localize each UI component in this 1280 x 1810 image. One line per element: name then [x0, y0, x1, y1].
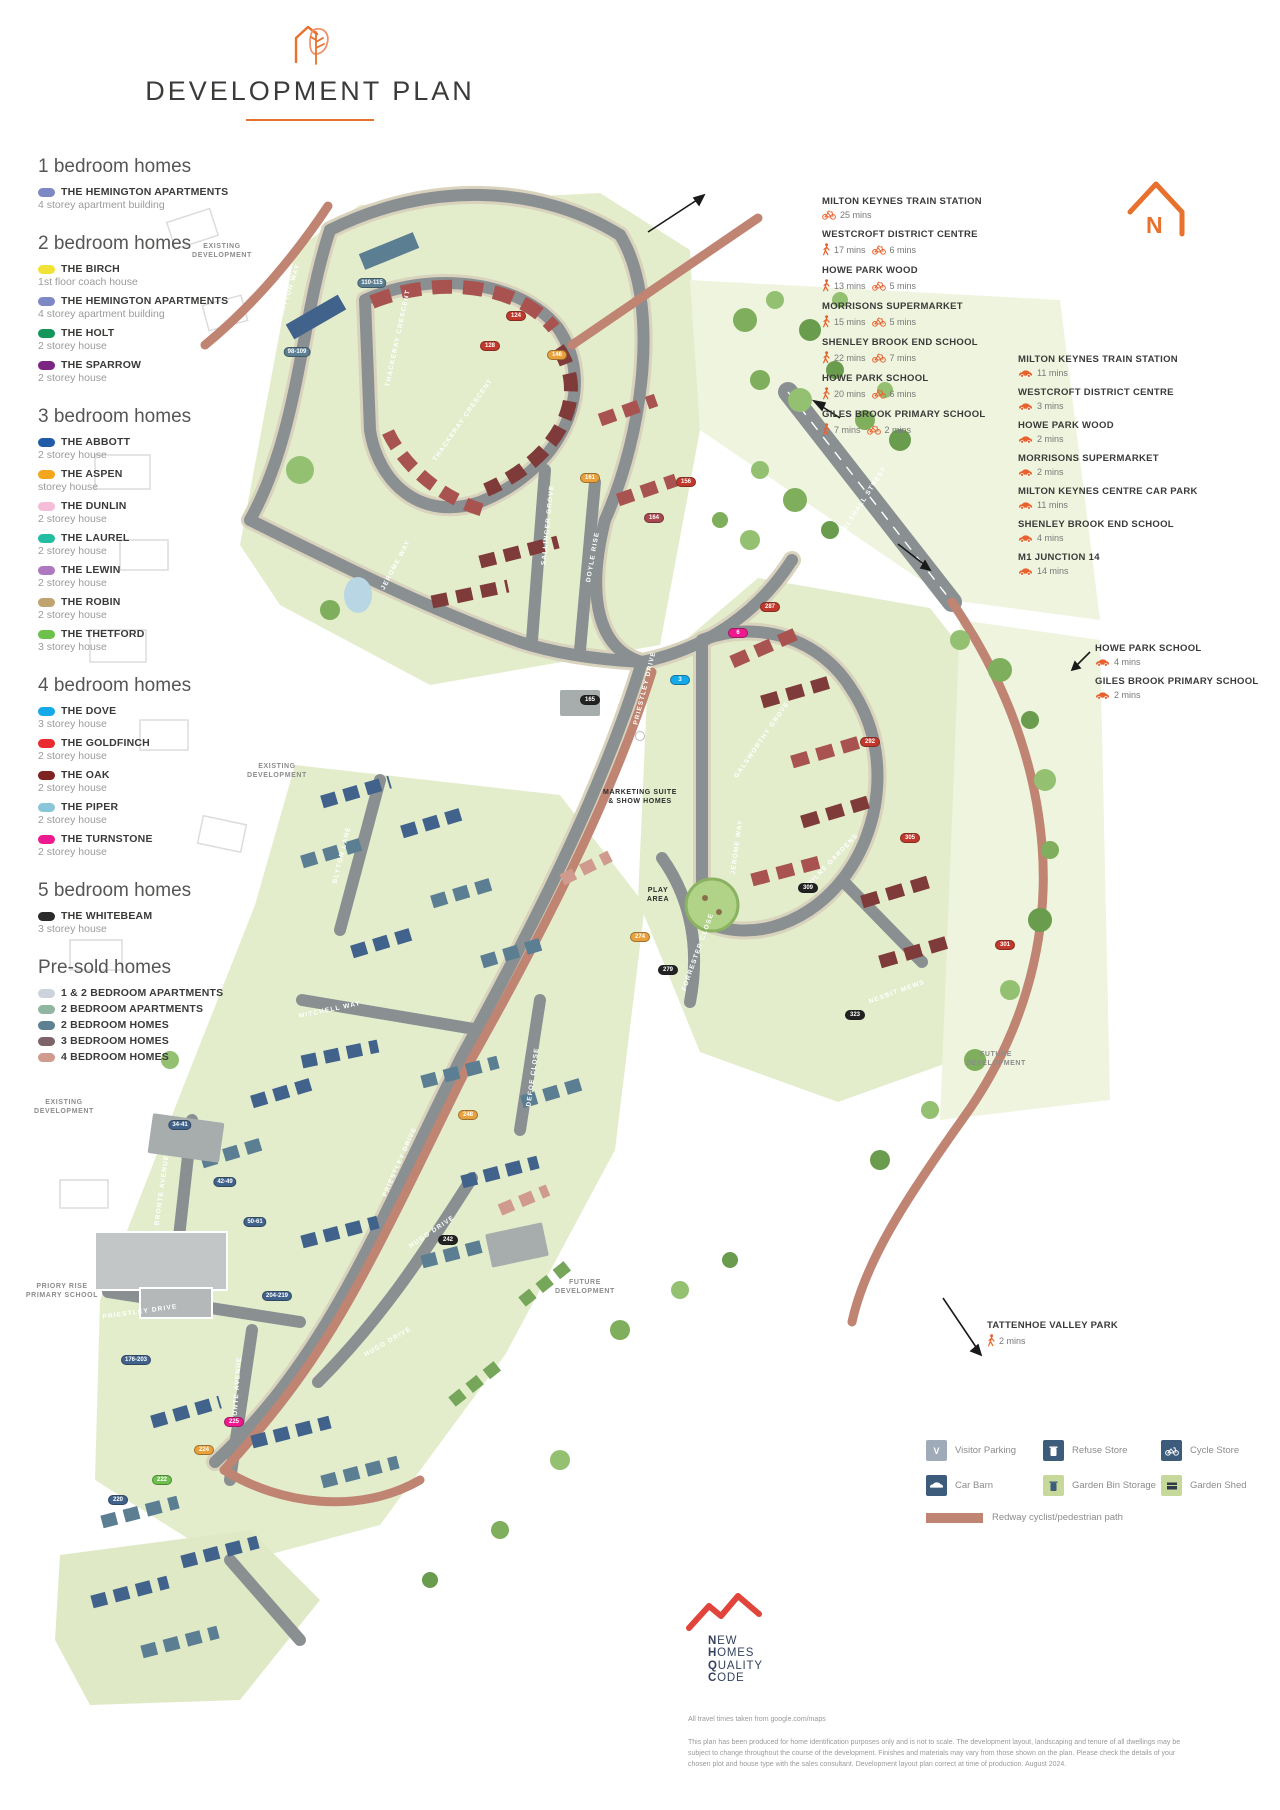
legend-item: THE BIRCH1st floor coach house [38, 263, 256, 288]
legend-item: THE THETFORD3 storey house [38, 628, 256, 653]
refuse-store-icon [1043, 1440, 1064, 1461]
amenities-legend: VVisitor ParkingRefuse StoreCycle StoreC… [926, 1440, 1274, 1523]
travel-time-value: 2 mins [1114, 690, 1141, 700]
house-type-swatch [38, 989, 55, 998]
travel-time-cycle: 5 mins [872, 317, 917, 327]
amenity-label: Garden Bin Storage [1072, 1480, 1156, 1491]
legend-item: THE ASPENstorey house [38, 468, 256, 493]
house-type-desc: 3 storey house [38, 718, 256, 730]
house-type-swatch [38, 329, 55, 338]
travel-time-cycle: 2 mins [867, 425, 912, 435]
cycle-icon [872, 245, 886, 255]
travel-time-cycle: 6 mins [872, 245, 917, 255]
car-icon [1018, 369, 1033, 378]
garden-bin-storage-icon [1043, 1475, 1064, 1496]
amenity-legend-item: Cycle Store [1161, 1440, 1274, 1461]
travel-time-value: 17 mins [834, 245, 866, 255]
house-type-name: THE WHITEBEAM [61, 910, 152, 922]
cycle-icon [872, 353, 886, 363]
legend-section-heading: 4 bedroom homes [38, 675, 256, 697]
play-area [686, 879, 738, 931]
house-type-desc: 2 storey house [38, 449, 256, 461]
travel-destination-name: M1 JUNCTION 14 [1018, 552, 1218, 563]
travel-time-car: 14 mins [1018, 566, 1069, 576]
house-type-swatch [38, 502, 55, 511]
house-type-swatch [38, 835, 55, 844]
amenity-label: Garden Shed [1190, 1480, 1247, 1491]
travel-time-walk: 17 mins [822, 243, 866, 256]
legend-item: 1 & 2 BEDROOM APARTMENTS [38, 987, 256, 999]
car-icon [1018, 468, 1033, 477]
travel-time-value: 5 mins [890, 317, 917, 327]
house-type-swatch [38, 1005, 55, 1014]
house-type-name: THE PIPER [61, 801, 118, 813]
legend-item: THE WHITEBEAM3 storey house [38, 910, 256, 935]
travel-time-value: 11 mins [1037, 500, 1068, 510]
house-type-name: 4 BEDROOM HOMES [61, 1051, 169, 1063]
car-icon [1018, 468, 1033, 477]
car-icon [1018, 435, 1033, 444]
house-type-swatch [38, 188, 55, 197]
travel-time-walk: 2 mins [987, 1334, 1026, 1347]
house-type-name: 1 & 2 BEDROOM APARTMENTS [61, 987, 223, 999]
cycle-icon [822, 210, 836, 220]
nhqc-text: NEWHOMESQUALITYCODE [708, 1635, 763, 1685]
travel-time-cycle: 7 mins [872, 353, 917, 363]
house-type-name: THE THETFORD [61, 628, 144, 640]
travel-destination: HOWE PARK SCHOOL20 mins6 mins [822, 373, 1022, 400]
travel-time-value: 3 mins [1037, 401, 1064, 411]
travel-time-value: 4 mins [1114, 657, 1141, 667]
travel-destination: GILES BROOK PRIMARY SCHOOL2 mins [1095, 676, 1280, 700]
legend-item: THE HEMINGTON APARTMENTS4 storey apartme… [38, 295, 256, 320]
travel-time-value: 7 mins [834, 425, 861, 435]
travel-time-walk: 20 mins [822, 387, 866, 400]
amenity-legend-item: Refuse Store [1043, 1440, 1161, 1461]
walk-icon [822, 423, 830, 436]
house-type-name: THE LEWIN [61, 564, 121, 576]
amenity-label: Car Barn [955, 1480, 993, 1491]
house-type-swatch [38, 566, 55, 575]
house-type-desc: 4 storey apartment building [38, 199, 256, 211]
legend-section-heading: 2 bedroom homes [38, 233, 256, 255]
travel-destination: MILTON KEYNES TRAIN STATION25 mins [822, 196, 1022, 220]
travel-time-value: 15 mins [834, 317, 866, 327]
house-type-swatch [38, 912, 55, 921]
travel-time-car: 2 mins [1095, 690, 1141, 700]
legend-item: THE OAK2 storey house [38, 769, 256, 794]
visitor-parking-icon: V [926, 1440, 947, 1461]
house-type-name: 2 BEDROOM APARTMENTS [61, 1003, 203, 1015]
legend-item: 2 BEDROOM HOMES [38, 1019, 256, 1031]
house-type-desc: 2 storey house [38, 340, 256, 352]
car-icon [1018, 402, 1033, 411]
walk-icon [822, 351, 830, 364]
walk-icon [822, 279, 830, 292]
house-type-name: THE TURNSTONE [61, 833, 153, 845]
travel-destination-name: WESTCROFT DISTRICT CENTRE [1018, 387, 1218, 398]
garden-shed-icon [1161, 1475, 1182, 1496]
travel-destination-name: HOWE PARK SCHOOL [822, 373, 1022, 384]
redway-path-swatch [926, 1513, 983, 1523]
car-icon [1018, 567, 1033, 576]
travel-destination: GILES BROOK PRIMARY SCHOOL7 mins2 mins [822, 409, 1022, 436]
travel-destination: MILTON KEYNES TRAIN STATION11 mins [1018, 354, 1218, 378]
cycle-icon [822, 210, 836, 220]
nhqc-line: CODE [708, 1672, 763, 1684]
house-type-desc: 2 storey house [38, 577, 256, 589]
cycle-icon [872, 281, 886, 291]
house-type-desc: 1st floor coach house [38, 276, 256, 288]
legend-item: THE ROBIN2 storey house [38, 596, 256, 621]
cycle-icon [867, 425, 881, 435]
legend-item: THE HEMINGTON APARTMENTS4 storey apartme… [38, 186, 256, 211]
travel-time-car: 11 mins [1018, 368, 1068, 378]
house-type-desc: 4 storey apartment building [38, 308, 256, 320]
house-type-name: THE ASPEN [61, 468, 123, 480]
legend-item: THE HOLT2 storey house [38, 327, 256, 352]
house-type-swatch [38, 739, 55, 748]
car-icon [1095, 658, 1110, 667]
house-type-desc: 3 storey house [38, 923, 256, 935]
house-type-desc: 2 storey house [38, 846, 256, 858]
house-type-swatch [38, 1053, 55, 1062]
walk-icon [987, 1334, 995, 1347]
travel-destination: M1 JUNCTION 1414 mins [1018, 552, 1218, 576]
legend-item: THE PIPER2 storey house [38, 801, 256, 826]
legend-item: THE DOVE3 storey house [38, 705, 256, 730]
travel-times-park: TATTENHOE VALLEY PARK2 mins [987, 1320, 1187, 1356]
legend-item: THE ABBOTT2 storey house [38, 436, 256, 461]
travel-destination-name: TATTENHOE VALLEY PARK [987, 1320, 1187, 1331]
house-type-name: THE DUNLIN [61, 500, 127, 512]
walk-icon [822, 243, 830, 256]
travel-destination: WESTCROFT DISTRICT CENTRE3 mins [1018, 387, 1218, 411]
header: DEVELOPMENT PLAN [120, 18, 500, 121]
cycle-icon [872, 281, 886, 291]
house-type-swatch [38, 598, 55, 607]
travel-time-value: 7 mins [890, 353, 917, 363]
house-type-desc: 2 storey house [38, 513, 256, 525]
travel-time-cycle: 25 mins [822, 210, 872, 220]
walk-icon [822, 387, 830, 400]
travel-time-cycle: 6 mins [872, 389, 917, 399]
house-type-swatch [38, 771, 55, 780]
pond [344, 577, 372, 613]
travel-destination: MORRISONS SUPERMARKET15 mins5 mins [822, 301, 1022, 328]
cycle-store-icon [1161, 1440, 1182, 1461]
house-type-name: THE HEMINGTON APARTMENTS [61, 186, 228, 198]
walk-icon [822, 279, 830, 292]
car-icon [1018, 402, 1033, 411]
car-barn-icon [926, 1475, 947, 1496]
cycle-icon [872, 353, 886, 363]
travel-time-value: 4 mins [1037, 533, 1064, 543]
travel-destination-name: HOWE PARK SCHOOL [1095, 643, 1280, 654]
travel-time-walk: 7 mins [822, 423, 861, 436]
travel-time-walk: 22 mins [822, 351, 866, 364]
car-icon [1018, 534, 1033, 543]
house-type-desc: 2 storey house [38, 372, 256, 384]
house-type-name: THE ABBOTT [61, 436, 130, 448]
travel-destination: HOWE PARK WOOD13 mins5 mins [822, 265, 1022, 292]
travel-destination-name: WESTCROFT DISTRICT CENTRE [822, 229, 1022, 240]
travel-time-value: 14 mins [1037, 566, 1069, 576]
house-type-swatch [38, 1021, 55, 1030]
legend-item: THE SPARROW2 storey house [38, 359, 256, 384]
travel-time-car: 2 mins [1018, 467, 1064, 477]
legend-item: THE GOLDFINCH2 storey house [38, 737, 256, 762]
travel-destination-name: MILTON KEYNES TRAIN STATION [822, 196, 1022, 207]
house-type-desc: 2 storey house [38, 545, 256, 557]
walk-icon [822, 423, 830, 436]
car-icon [1095, 691, 1110, 700]
travel-time-car: 4 mins [1095, 657, 1141, 667]
travel-destination-name: MORRISONS SUPERMARKET [822, 301, 1022, 312]
house-type-swatch [38, 297, 55, 306]
legend-section-heading: 3 bedroom homes [38, 406, 256, 428]
walk-icon [822, 387, 830, 400]
car-icon [1018, 567, 1033, 576]
travel-time-car: 4 mins [1018, 533, 1064, 543]
travel-destination-name: SHENLEY BROOK END SCHOOL [822, 337, 1022, 348]
walk-icon [822, 243, 830, 256]
legend-item: THE DUNLIN2 storey house [38, 500, 256, 525]
house-type-desc: 2 storey house [38, 782, 256, 794]
legend-item: THE LEWIN2 storey house [38, 564, 256, 589]
house-type-swatch [38, 707, 55, 716]
house-type-name: THE OAK [61, 769, 110, 781]
cycle-icon [872, 389, 886, 399]
walk-icon [822, 315, 830, 328]
travel-time-value: 2 mins [885, 425, 912, 435]
travel-destination-name: GILES BROOK PRIMARY SCHOOL [822, 409, 1022, 420]
legend-item: 3 BEDROOM HOMES [38, 1035, 256, 1047]
travel-destination: SHENLEY BROOK END SCHOOL22 mins7 mins [822, 337, 1022, 364]
travel-time-value: 20 mins [834, 389, 866, 399]
travel-time-value: 2 mins [1037, 467, 1064, 477]
page-title: DEVELOPMENT PLAN [120, 76, 500, 107]
cycle-icon [872, 389, 886, 399]
cycle-icon [867, 425, 881, 435]
travel-destination-name: GILES BROOK PRIMARY SCHOOL [1095, 676, 1280, 687]
amenity-legend-item: VVisitor Parking [926, 1440, 1043, 1461]
legend-section-heading: Pre-sold homes [38, 957, 256, 979]
travel-destination: MORRISONS SUPERMARKET2 mins [1018, 453, 1218, 477]
walk-icon [987, 1334, 995, 1347]
house-type-swatch [38, 803, 55, 812]
travel-destination: HOWE PARK SCHOOL4 mins [1095, 643, 1280, 667]
nhqc-line: HOMES [708, 1647, 763, 1659]
legend-section-heading: 5 bedroom homes [38, 880, 256, 902]
cycle-icon [872, 317, 886, 327]
house-type-desc: 2 storey house [38, 609, 256, 621]
house-type-swatch [38, 361, 55, 370]
travel-time-value: 5 mins [890, 281, 917, 291]
house-type-name: THE BIRCH [61, 263, 120, 275]
travel-time-value: 2 mins [1037, 434, 1064, 444]
house-type-name: THE SPARROW [61, 359, 141, 371]
travel-destination-name: MORRISONS SUPERMARKET [1018, 453, 1218, 464]
redway-path-label: Redway cyclist/pedestrian path [992, 1512, 1123, 1523]
travel-time-walk: 13 mins [822, 279, 866, 292]
travel-times-source-note: All travel times taken from google.com/m… [688, 1716, 826, 1723]
house-type-swatch [38, 438, 55, 447]
house-type-name: THE DOVE [61, 705, 116, 717]
travel-time-value: 6 mins [890, 245, 917, 255]
house-type-swatch [38, 630, 55, 639]
car-icon [1018, 501, 1033, 510]
travel-time-value: 11 mins [1037, 368, 1068, 378]
car-icon [1095, 691, 1110, 700]
house-type-name: 2 BEDROOM HOMES [61, 1019, 169, 1031]
house-type-name: 3 BEDROOM HOMES [61, 1035, 169, 1047]
travel-destination: SHENLEY BROOK END SCHOOL4 mins [1018, 519, 1218, 543]
north-letter: N [1146, 212, 1163, 239]
car-icon [1095, 658, 1110, 667]
travel-destination: TATTENHOE VALLEY PARK2 mins [987, 1320, 1187, 1347]
legend-section-heading: 1 bedroom homes [38, 156, 256, 178]
travel-destination-name: MILTON KEYNES TRAIN STATION [1018, 354, 1218, 365]
travel-times-walk-cycle: MILTON KEYNES TRAIN STATION25 minsWESTCR… [822, 196, 1022, 445]
amenity-label: Cycle Store [1190, 1445, 1239, 1456]
nhqc-logo: NEWHOMESQUALITYCODE [686, 1590, 763, 1685]
car-icon [1018, 369, 1033, 378]
amenity-legend-item: Garden Bin Storage [1043, 1475, 1161, 1496]
travel-destination: HOWE PARK WOOD2 mins [1018, 420, 1218, 444]
legend-item: THE LAUREL2 storey house [38, 532, 256, 557]
travel-time-value: 22 mins [834, 353, 866, 363]
travel-time-value: 2 mins [999, 1336, 1026, 1346]
walk-icon [822, 351, 830, 364]
legend-item: 4 BEDROOM HOMES [38, 1051, 256, 1063]
amenity-legend-item: Garden Shed [1161, 1475, 1274, 1496]
house-type-desc: 2 storey house [38, 814, 256, 826]
travel-time-cycle: 5 mins [872, 281, 917, 291]
marketing-suite-leader [636, 732, 645, 779]
travel-time-value: 13 mins [834, 281, 866, 291]
disclaimer-text: This plan has been produced for home ide… [688, 1738, 1196, 1771]
amenity-label: Visitor Parking [955, 1445, 1016, 1456]
house-type-name: THE GOLDFINCH [61, 737, 150, 749]
home-types-legend: 1 bedroom homesTHE HEMINGTON APARTMENTS4… [38, 156, 256, 1067]
nhqc-roof-icon [686, 1590, 762, 1632]
house-type-swatch [38, 265, 55, 274]
travel-destination-name: SHENLEY BROOK END SCHOOL [1018, 519, 1218, 530]
house-type-name: THE HOLT [61, 327, 114, 339]
house-type-swatch [38, 470, 55, 479]
title-rule [246, 119, 374, 121]
car-icon [1018, 435, 1033, 444]
travel-time-car: 2 mins [1018, 434, 1064, 444]
nhqc-line: QUALITY [708, 1660, 763, 1672]
car-icon [1018, 534, 1033, 543]
car-icon [1018, 501, 1033, 510]
walk-icon [822, 315, 830, 328]
travel-times-drive: MILTON KEYNES TRAIN STATION11 minsWESTCR… [1018, 354, 1218, 585]
house-type-desc: 2 storey house [38, 750, 256, 762]
amenity-legend-item: Car Barn [926, 1475, 1043, 1496]
travel-destination: WESTCROFT DISTRICT CENTRE17 mins6 mins [822, 229, 1022, 256]
travel-time-walk: 15 mins [822, 315, 866, 328]
travel-times-drive-schools: HOWE PARK SCHOOL4 minsGILES BROOK PRIMAR… [1095, 643, 1280, 709]
north-arrow: N [1122, 168, 1192, 251]
travel-time-value: 6 mins [890, 389, 917, 399]
house-type-swatch [38, 1037, 55, 1046]
travel-time-value: 25 mins [840, 210, 872, 220]
travel-destination-name: HOWE PARK WOOD [822, 265, 1022, 276]
travel-destination: MILTON KEYNES CENTRE CAR PARK11 mins [1018, 486, 1218, 510]
house-type-desc: storey house [38, 481, 256, 493]
travel-destination-name: HOWE PARK WOOD [1018, 420, 1218, 431]
house-type-name: THE LAUREL [61, 532, 130, 544]
travel-time-car: 3 mins [1018, 401, 1064, 411]
cycle-icon [872, 317, 886, 327]
legend-item: THE TURNSTONE2 storey house [38, 833, 256, 858]
house-type-swatch [38, 534, 55, 543]
legend-item: 2 BEDROOM APARTMENTS [38, 1003, 256, 1015]
travel-destination-name: MILTON KEYNES CENTRE CAR PARK [1018, 486, 1218, 497]
house-type-name: THE ROBIN [61, 596, 121, 608]
nhqc-line: NEW [708, 1635, 763, 1647]
travel-time-car: 11 mins [1018, 500, 1068, 510]
amenity-label: Refuse Store [1072, 1445, 1127, 1456]
house-type-desc: 3 storey house [38, 641, 256, 653]
house-type-name: THE HEMINGTON APARTMENTS [61, 295, 228, 307]
cycle-icon [872, 245, 886, 255]
developer-logo-icon [284, 18, 336, 70]
